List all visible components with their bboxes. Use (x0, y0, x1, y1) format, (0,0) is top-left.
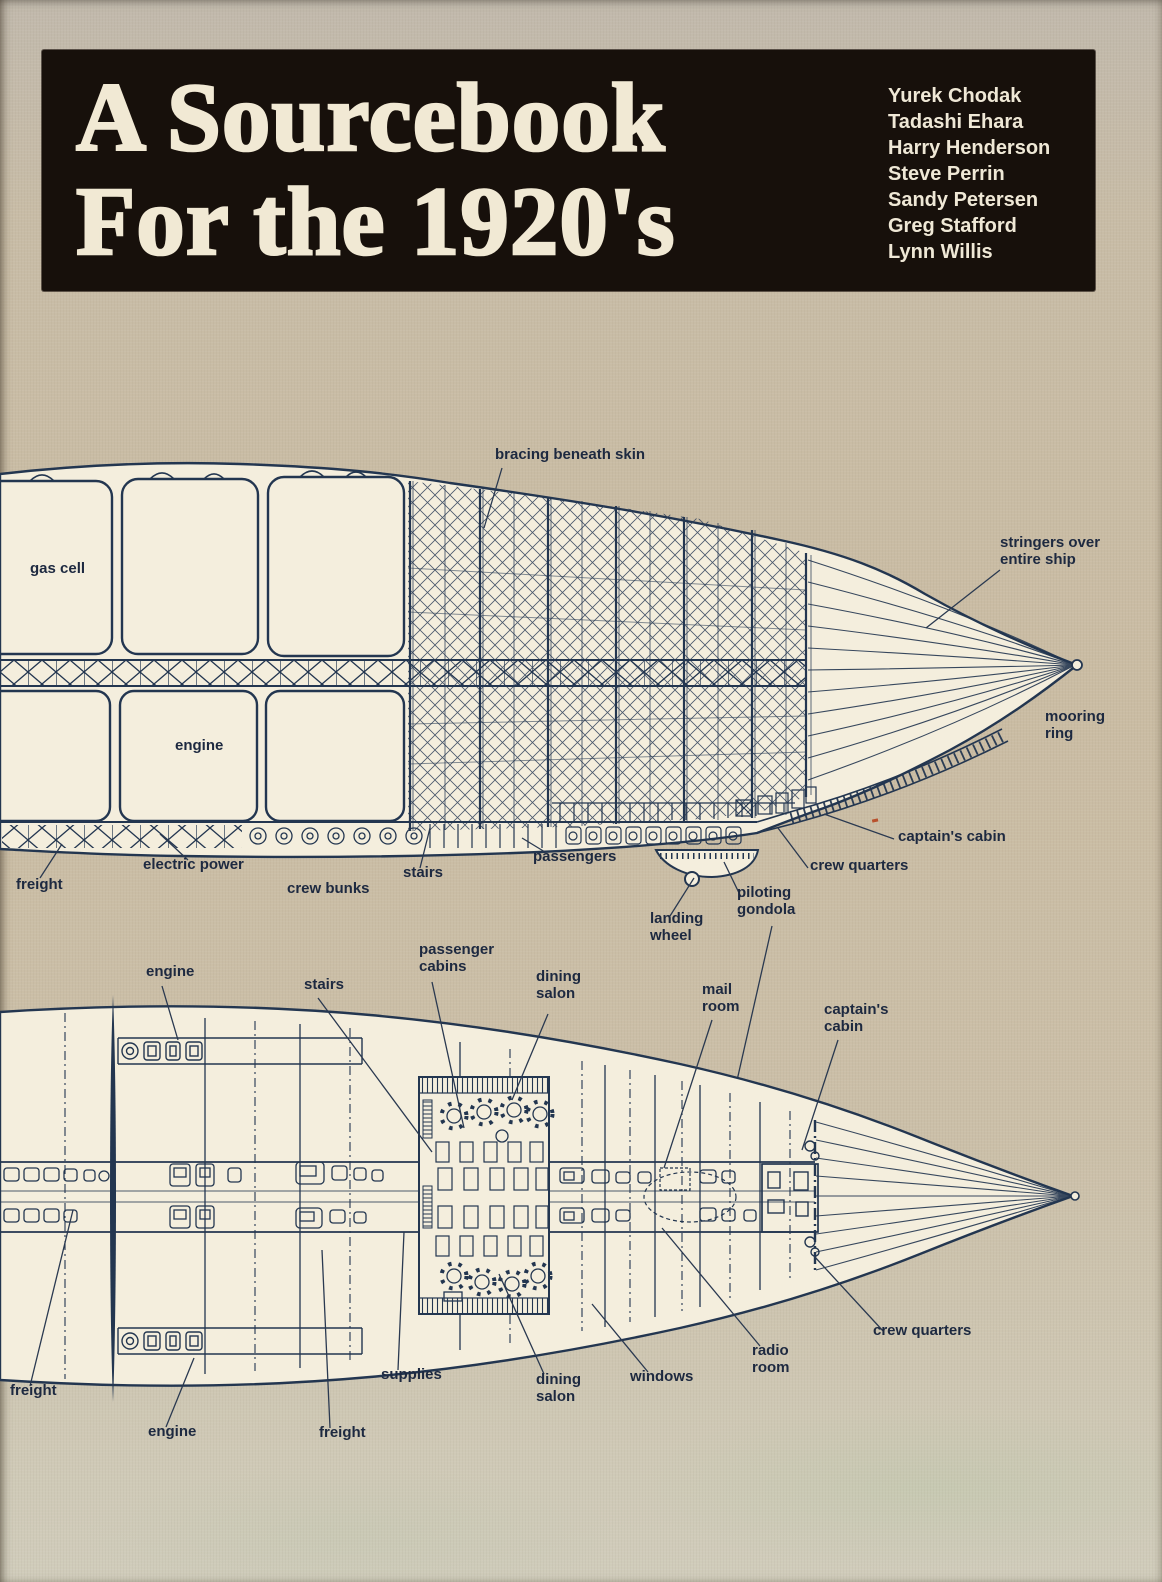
landing-wheel-shape (685, 872, 699, 886)
mooring-cone (1072, 660, 1082, 670)
mid-walkway-truss (0, 660, 806, 686)
label-stairs-plan: stairs (304, 976, 344, 993)
label-passengers: passengers (533, 848, 616, 865)
label-freight-mid: freight (319, 1424, 366, 1441)
label-mooring-ring: mooring ring (1045, 708, 1105, 743)
label-mail-room: mail room (702, 981, 740, 1016)
label-dining-salon-lower: dining salon (536, 1371, 581, 1406)
label-electric-power: electric power (143, 856, 244, 873)
label-landing-wheel: landing wheel (650, 910, 703, 945)
label-gas-cell: gas cell (30, 560, 85, 577)
label-engine-side: engine (175, 737, 223, 754)
label-supplies: supplies (381, 1366, 442, 1383)
label-radio-room: radio room (752, 1342, 790, 1377)
plan-view-diagram (0, 982, 1079, 1428)
label-passenger-cabins: passenger cabins (419, 941, 494, 976)
label-stringers: stringers over entire ship (1000, 534, 1100, 569)
label-engine-fore: engine (146, 963, 194, 980)
label-piloting-gondola: piloting gondola (737, 884, 795, 919)
label-crew-quarters-side: crew quarters (810, 857, 908, 874)
airship-diagrams (0, 0, 1162, 1582)
label-engine-aft: engine (148, 1423, 196, 1440)
label-bracing-beneath-skin: bracing beneath skin (495, 446, 645, 463)
label-windows: windows (630, 1368, 693, 1385)
label-captains-cabin-side: captain's cabin (898, 828, 1006, 845)
label-dining-salon-upper: dining salon (536, 968, 581, 1003)
label-captains-cabin-plan: captain's cabin (824, 1001, 888, 1036)
scanned-book-page: A SourcebookFor the 1920's Yurek Chodak … (0, 0, 1162, 1582)
label-crew-quarters-plan: crew quarters (873, 1322, 971, 1339)
label-crew-bunks: crew bunks (287, 880, 370, 897)
plan-nose-knob (1071, 1192, 1079, 1200)
piloting-gondola-shape (656, 850, 758, 886)
label-freight-side: freight (16, 876, 63, 893)
label-stairs-side: stairs (403, 864, 443, 881)
passenger-block (419, 1077, 553, 1314)
label-freight-aft: freight (10, 1382, 57, 1399)
ink-speck (872, 818, 878, 822)
